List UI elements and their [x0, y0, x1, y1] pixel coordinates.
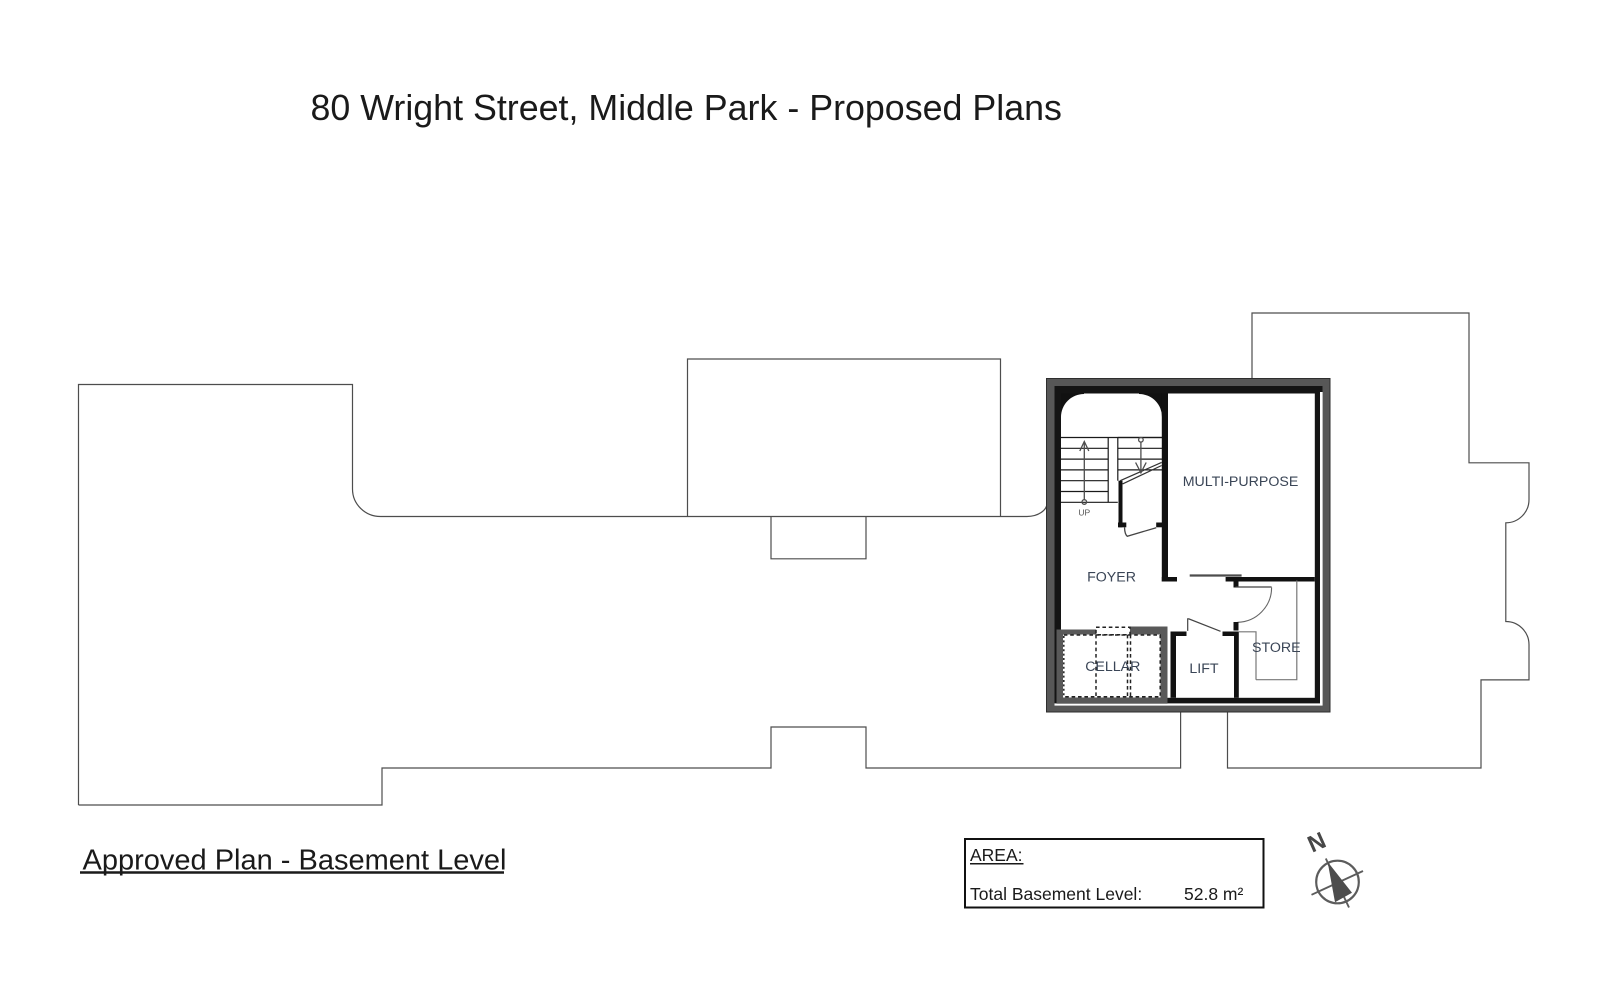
- svg-text:MULTI-PURPOSE: MULTI-PURPOSE: [1183, 474, 1299, 490]
- svg-text:52.8 m²: 52.8 m²: [1184, 884, 1243, 904]
- svg-text:UP: UP: [1078, 508, 1090, 518]
- svg-text:Total Basement Level:: Total Basement Level:: [970, 884, 1142, 904]
- svg-text:AREA:: AREA:: [970, 845, 1023, 865]
- svg-text:LIFT: LIFT: [1189, 661, 1218, 677]
- svg-text:FOYER: FOYER: [1087, 569, 1136, 585]
- svg-text:STORE: STORE: [1252, 640, 1301, 656]
- svg-text:CELLAR: CELLAR: [1085, 659, 1140, 675]
- svg-text:80 Wright Street, Middle Park: 80 Wright Street, Middle Park - Proposed…: [311, 88, 1062, 128]
